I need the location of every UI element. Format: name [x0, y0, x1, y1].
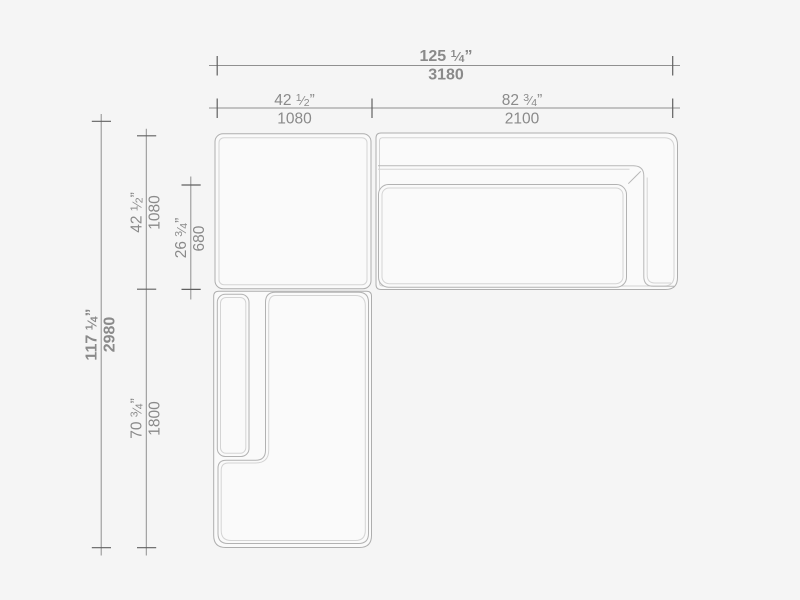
svg-text:82 3⁄4”: 82 3⁄4” [502, 92, 543, 109]
svg-text:70 3⁄4”: 70 3⁄4” [128, 398, 145, 439]
svg-text:42 1⁄2”: 42 1⁄2” [128, 192, 145, 233]
svg-text:3180: 3180 [428, 66, 464, 83]
svg-text:125 1⁄4”: 125 1⁄4” [420, 48, 473, 65]
svg-text:2100: 2100 [505, 110, 540, 127]
svg-text:42 1⁄2”: 42 1⁄2” [274, 92, 315, 109]
svg-text:117 1⁄4”: 117 1⁄4” [84, 308, 101, 360]
svg-text:1080: 1080 [146, 195, 163, 230]
svg-text:26 3⁄4”: 26 3⁄4” [173, 218, 190, 259]
svg-text:2980: 2980 [102, 317, 119, 353]
svg-text:680: 680 [191, 225, 208, 251]
svg-text:1800: 1800 [146, 401, 163, 436]
svg-text:1080: 1080 [277, 110, 312, 127]
